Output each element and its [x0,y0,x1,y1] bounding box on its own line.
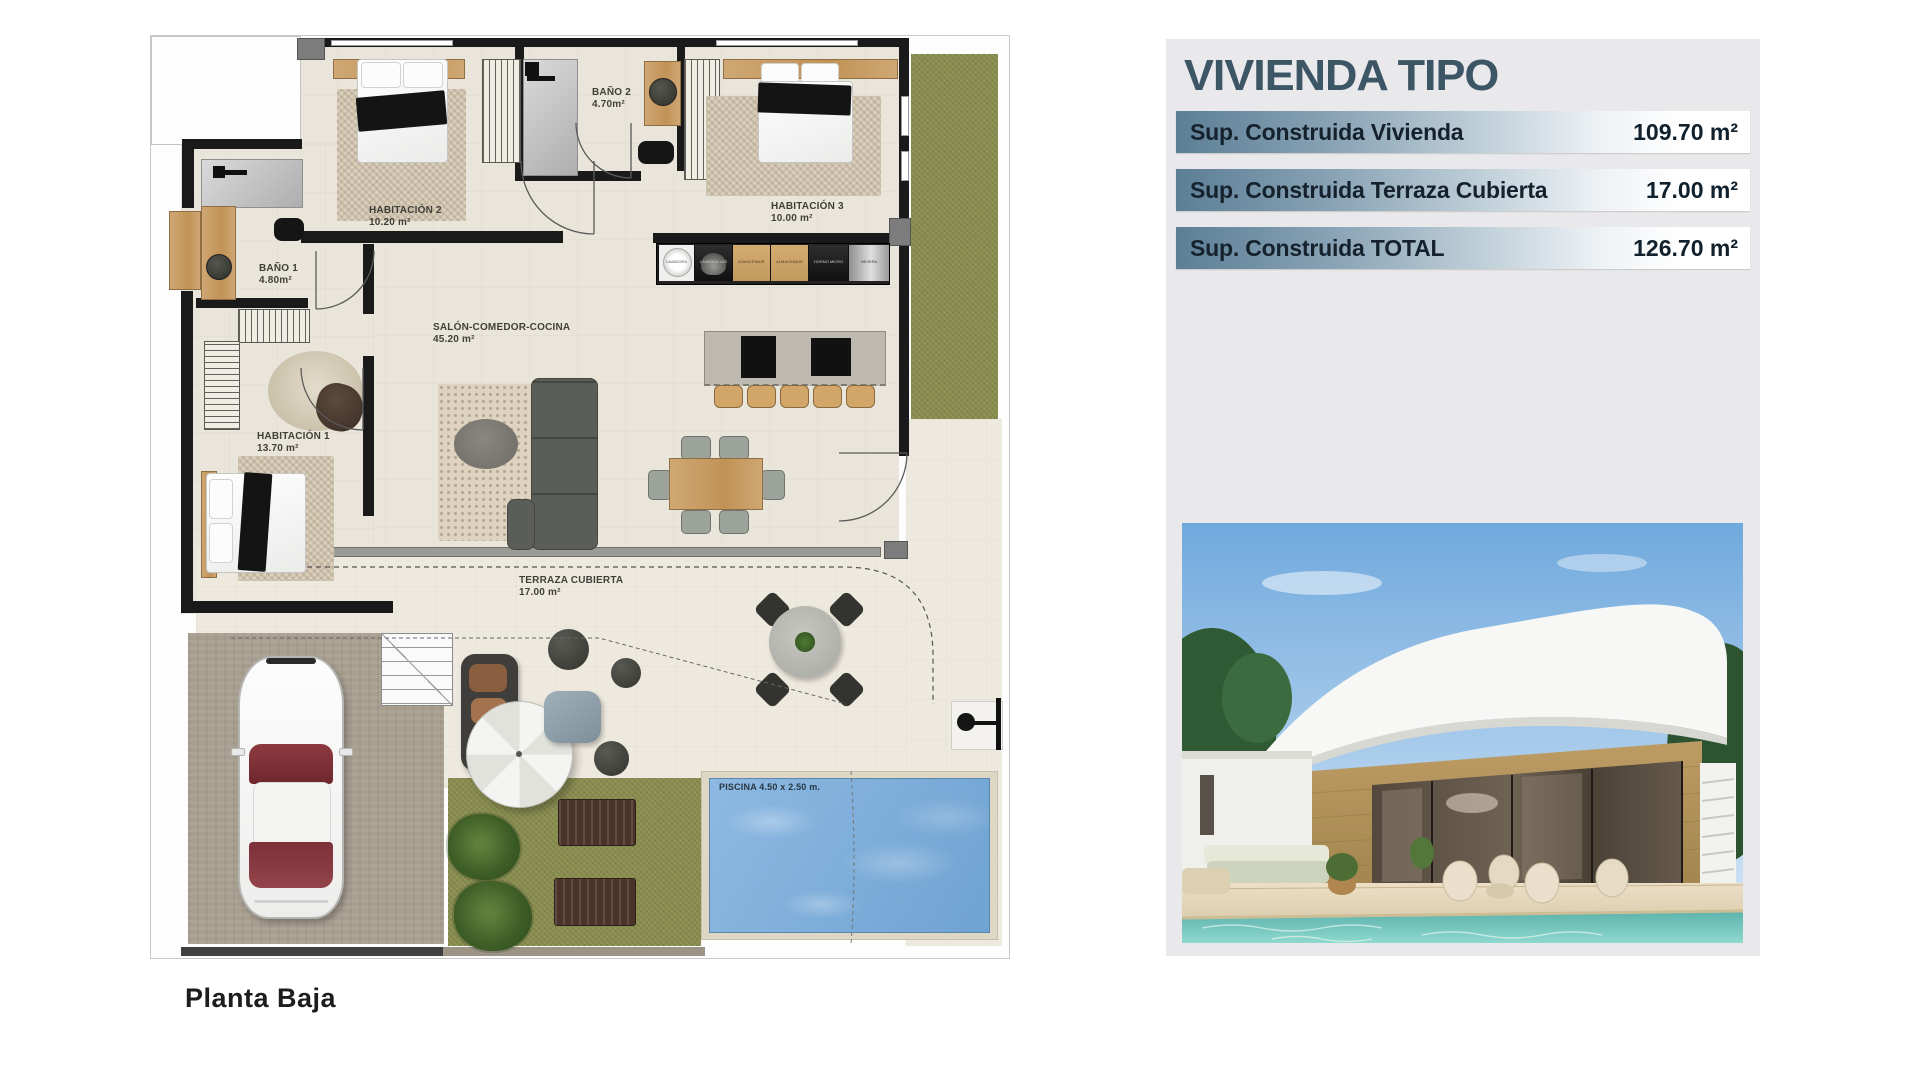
pillow [361,62,401,88]
room-area: 17.00 m² [519,587,623,599]
surface-label: Sup. Construida Vivienda [1190,119,1463,146]
kitchen-unit-label: HORNO MICRO [809,259,848,264]
car-grille [266,658,316,664]
room-name: BAÑO 1 [259,263,298,275]
entry-stairs [381,633,453,706]
toilet [274,218,304,241]
car-windshield [249,744,333,784]
wardrobe [204,341,240,430]
pillow [403,62,443,88]
room-area: 13.70 m² [257,443,330,455]
entry-deck [169,211,201,290]
wall [363,244,374,314]
bath-bench [201,206,236,300]
pouf [611,658,641,688]
pillar [297,38,325,60]
dining-chair [681,436,711,460]
room-area: 4.70m² [592,99,631,111]
room-label-bano1: BAÑO 1 4.80m² [259,263,298,287]
plan-caption: Planta Baja [185,983,336,1014]
car-trunk-line [254,900,328,903]
room-area: 10.20 m² [369,217,442,229]
kitchen-unit-label: LAVAVAJILLAS [695,259,732,264]
bar-stool [747,385,776,408]
surface-row: Sup. Construida Vivienda 109.70 m² [1176,111,1750,153]
sun-lounger [558,799,636,846]
room-name: BAÑO 2 [592,87,631,99]
pool [709,778,990,933]
shower-arm [527,76,555,81]
sofa-chaise [507,499,535,550]
dining-chair [761,470,785,500]
villa-photo [1182,523,1743,943]
shower-fixture [213,166,225,178]
window [901,151,909,181]
site-wall-dark [181,947,443,956]
floor-plan: LAVADORA LAVAVAJILLAS ALMACENAJE ALMACEN… [150,35,1010,959]
room-name: TERRAZA CUBIERTA [519,575,623,587]
wardrobe [238,309,310,343]
room-label-bano2: BAÑO 2 4.70m² [592,87,631,111]
round-rug [454,419,518,469]
surface-row: Sup. Construida TOTAL 126.70 m² [1176,227,1750,269]
island-sink [811,338,851,376]
oven-micro: HORNO MICRO [808,245,848,281]
shower-fixture [525,62,539,76]
wall [182,139,302,149]
storage-cabinet: ALMACENAJE [770,245,808,281]
palm-tree [448,814,520,880]
wall [363,356,374,516]
pillow [209,479,233,519]
wardrobe [482,59,521,163]
cooktop [741,336,776,378]
washbasin [206,254,232,280]
pillar [889,218,911,246]
wall [182,141,194,208]
washing-machine: LAVADORA [658,245,694,281]
car-rear-glass [249,842,333,888]
kitchen-unit-label: ALMACENAJE [733,259,770,264]
window [331,40,453,46]
surface-label: Sup. Construida Terraza Cubierta [1190,177,1547,204]
entry-porch [151,36,301,145]
kitchen-unit-label: LAVADORA [659,259,694,264]
pillar [884,541,908,559]
wall [653,233,903,243]
car-mirror [231,748,245,756]
surface-value: 17.00 m² [1646,177,1738,204]
dining-table [669,458,763,510]
room-label-habitacion3: HABITACIÓN 3 10.00 m² [771,201,844,225]
room-label-habitacion2: HABITACIÓN 2 10.20 m² [369,205,442,229]
surface-value: 126.70 m² [1633,235,1738,262]
square-pouf [544,691,601,743]
car-roof [253,782,331,846]
room-name: SALÓN-COMEDOR-COCINA [433,322,570,334]
room-name: HABITACIÓN 2 [369,205,442,217]
surface-label: Sup. Construida TOTAL [1190,235,1444,262]
room-name: HABITACIÓN 1 [257,431,330,443]
kitchen-unit-label: NEVERA [849,259,889,264]
dining-chair [719,510,749,534]
palm-tree [454,881,532,951]
toilet [638,141,674,164]
kitchen-counter: LAVADORA LAVAVAJILLAS ALMACENAJE ALMACEN… [656,243,890,285]
dining-chair [719,436,749,460]
shower-arm [225,170,247,175]
wall [899,38,909,244]
wall [181,601,393,613]
pillow [209,523,233,563]
room-area: 10.00 m² [771,213,844,225]
wall [181,291,193,613]
dining-chair [681,510,711,534]
bar-stool [714,385,743,408]
surface-value: 109.70 m² [1633,119,1738,146]
sun-lounger [554,878,636,926]
wall [899,244,909,456]
room-area: 4.80m² [259,275,298,287]
sofa [531,378,598,550]
pouf [594,741,629,776]
panel-title: VIVIENDA TIPO [1184,51,1772,101]
wall [301,231,563,243]
storage-cabinet: ALMACENAJE [732,245,770,281]
room-label-habitacion1: HABITACIÓN 1 13.70 m² [257,431,330,455]
outdoor-shower-head [957,713,975,731]
surface-row: Sup. Construida Terraza Cubierta 17.00 m… [1176,169,1750,211]
fridge: NEVERA [848,245,889,281]
sofa-cushion [469,664,507,692]
vanity-basin [649,78,677,106]
window [901,96,909,136]
bed-throw [758,82,852,115]
dishwasher: LAVAVAJILLAS [694,245,732,281]
pouf [548,629,589,670]
bar-stool [813,385,842,408]
pool-label: PISCINA 4.50 x 2.50 m. [719,782,820,792]
kitchen-unit-label: ALMACENAJE [771,259,808,264]
room-label-terraza: TERRAZA CUBIERTA 17.00 m² [519,575,623,599]
room-name: HABITACIÓN 3 [771,201,844,213]
room-label-salon: SALÓN-COMEDOR-COCINA 45.20 m² [433,322,570,346]
room-area: 45.20 m² [433,334,570,346]
table-plant [795,632,815,652]
bar-stool [846,385,875,408]
car-mirror [339,748,353,756]
car [238,656,344,919]
parasol-pole [516,751,522,757]
bar-stool [780,385,809,408]
kitchen-island [704,331,886,386]
window [716,40,858,46]
brochure-page: LAVADORA LAVAVAJILLAS ALMACENAJE ALMACEN… [0,0,1920,1080]
grass-strip-right [911,54,998,419]
